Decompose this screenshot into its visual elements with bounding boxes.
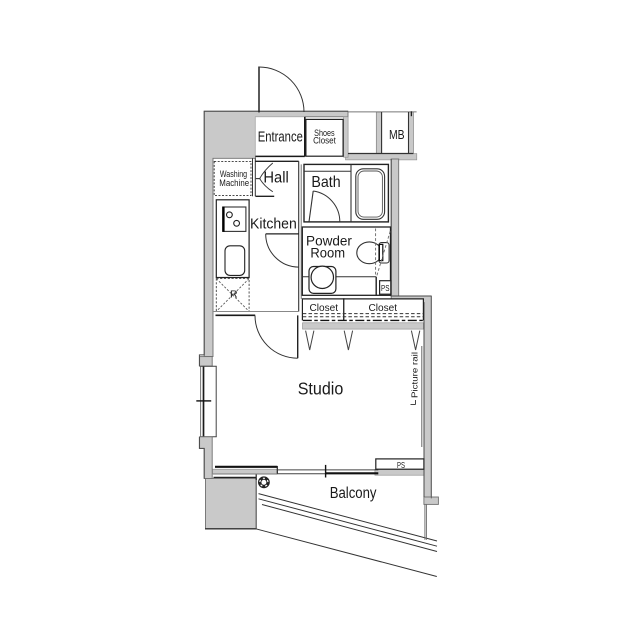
svg-text:Balcony: Balcony	[330, 485, 377, 502]
svg-text:Studio: Studio	[298, 379, 344, 399]
svg-text:PS: PS	[381, 284, 390, 293]
svg-text:Closet: Closet	[369, 302, 398, 314]
svg-text:PS: PS	[397, 460, 405, 470]
svg-text:Hall: Hall	[263, 170, 288, 187]
svg-text:Room: Room	[310, 245, 345, 261]
svg-text:Entrance: Entrance	[258, 128, 303, 145]
svg-text:Picture rail: Picture rail	[409, 352, 419, 398]
svg-text:Kitchen: Kitchen	[250, 215, 297, 232]
svg-text:R: R	[230, 288, 238, 300]
svg-text:Machine: Machine	[219, 178, 249, 188]
svg-text:Closet: Closet	[310, 302, 339, 314]
svg-text:Closet: Closet	[313, 136, 336, 147]
svg-text:MB: MB	[389, 128, 405, 142]
svg-text:Bath: Bath	[311, 174, 340, 191]
